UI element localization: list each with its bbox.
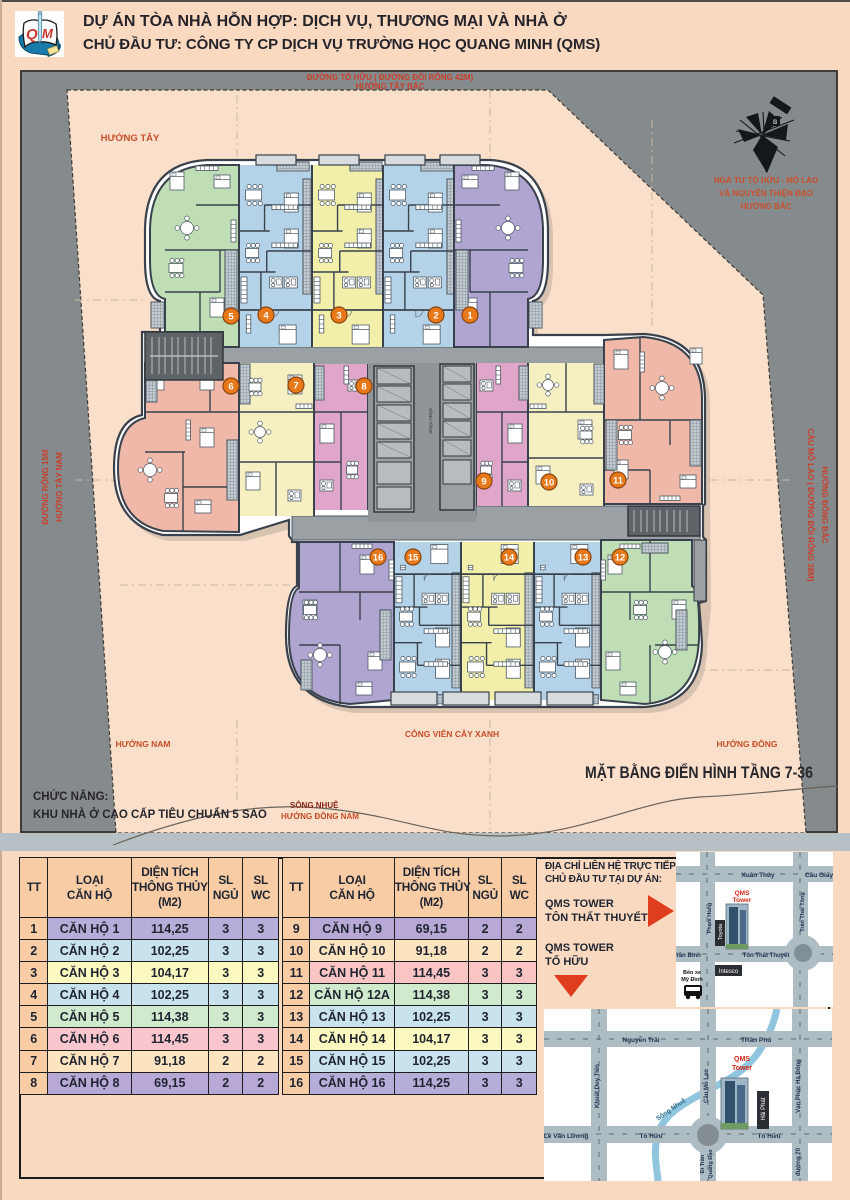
svg-text:Intesco: Intesco [719,969,739,975]
svg-text:14: 14 [504,552,515,563]
svg-text:Trần Bình: Trần Bình [676,953,701,959]
svg-text:CHỨC NĂNG:: CHỨC NĂNG: [33,790,108,803]
svg-text:15: 15 [408,552,419,563]
svg-text:CẦU MỖ LAO ( ĐƯỜNG ĐÔI RỘNG 38: CẦU MỖ LAO ( ĐƯỜNG ĐÔI RỘNG 38M) [806,428,816,581]
svg-text:Nguyễn Trãi: Nguyễn Trãi [622,1035,659,1044]
svg-text:VÀ NGUYỄN THIỆN ĐẠO: VÀ NGUYỄN THIỆN ĐẠO [719,189,813,198]
svg-text:Toyota: Toyota [718,923,724,940]
svg-text:Vạn Phúc Hà Đông: Vạn Phúc Hà Đông [796,1059,802,1113]
svg-text:Tower: Tower [732,1065,752,1072]
svg-text:Khuất Duy Tiến: Khuất Duy Tiến [594,1064,601,1108]
svg-text:1: 1 [467,310,473,321]
svg-text:HƯỚNG ĐÔNG: HƯỚNG ĐÔNG [716,738,777,749]
svg-text:Tố Hữu: Tố Hữu [639,1132,662,1140]
svg-text:10: 10 [544,477,555,488]
svg-text:KHU NHÀ Ở CAO CẤP TIÊU CHUẨN 5: KHU NHÀ Ở CAO CẤP TIÊU CHUẨN 5 SAO [33,808,267,821]
svg-text:Tôn Thất Thuyết: Tôn Thất Thuyết [743,952,790,959]
svg-text:3: 3 [336,310,341,321]
svg-text:NGÃ TƯ TỐ HỮU - MỖ LAO: NGÃ TƯ TỐ HỮU - MỖ LAO [714,175,818,185]
svg-text:Phạm Hùng: Phạm Hùng [707,903,713,934]
svg-text:SẢNH TẦNG: SẢNH TẦNG [428,408,434,435]
svg-text:Hải Phát: Hải Phát [761,1097,767,1120]
svg-text:4: 4 [263,310,269,321]
svg-text:Quang Đạo: Quang Đạo [708,1149,714,1179]
svg-text:CÔNG VIÊN CÂY XANH: CÔNG VIÊN CÂY XANH [405,728,499,739]
svg-text:Tố Hữu: Tố Hữu [757,1132,780,1140]
svg-text:HƯỚNG NAM: HƯỚNG NAM [116,738,171,749]
svg-text:ĐƯỜNG RỘNG 15M: ĐƯỜNG RỘNG 15M [41,449,50,525]
svg-text:HƯỚNG BẮC: HƯỚNG BẮC [741,202,792,211]
svg-text:Xuân Thủy: Xuân Thủy [741,872,775,879]
svg-text:8: 8 [361,381,366,392]
svg-text:ĐƯỜNG TỐ HỮU ( ĐƯỜNG ĐÔI RỘNG: ĐƯỜNG TỐ HỮU ( ĐƯỜNG ĐÔI RỘNG 42M) [307,72,474,82]
svg-text:Bến xe: Bến xe [683,969,701,976]
svg-text:Cầu Giấy: Cầu Giấy [805,870,833,879]
svg-text:MẶT BẰNG ĐIỂN HÌNH TẦNG 7-36: MẶT BẰNG ĐIỂN HÌNH TẦNG 7-36 [585,763,813,782]
svg-text:SÔNG NHUỆ: SÔNG NHUỆ [290,801,339,810]
svg-text:TRần Phú: TRần Phú [741,1035,771,1044]
svg-text:2: 2 [433,310,438,321]
svg-text:HƯỚNG ĐÔNG BẮC: HƯỚNG ĐÔNG BẮC [820,466,829,543]
svg-text:Tower: Tower [733,897,752,904]
svg-text:9: 9 [481,476,486,487]
svg-text:16: 16 [373,552,384,563]
svg-text:QMS: QMS [734,1056,750,1063]
svg-text:HƯỚNG TÂY: HƯỚNG TÂY [101,132,160,144]
svg-text:QMS: QMS [735,890,750,897]
svg-text:Cầu Mỗ Lao: Cầu Mỗ Lao [703,1069,710,1103]
svg-text:13: 13 [578,552,589,563]
svg-text:HƯỚNG ĐÔNG NAM: HƯỚNG ĐÔNG NAM [281,812,359,821]
svg-text:Mỹ Đình: Mỹ Đình [681,977,703,983]
svg-text:11: 11 [613,475,624,486]
svg-text:7: 7 [293,380,298,391]
svg-text:đường 70: đường 70 [796,1147,802,1176]
svg-text:B: B [773,120,778,126]
svg-text:12: 12 [615,552,626,563]
svg-text:HƯỚNG TÂY BẮC: HƯỚNG TÂY BẮC [356,82,425,91]
svg-text:Lê Văn Lương: Lê Văn Lương [544,1133,588,1140]
svg-text:HƯỚNG TÂY NAM: HƯỚNG TÂY NAM [55,452,64,522]
svg-text:Trần Thái Tông: Trần Thái Tông [800,892,806,931]
svg-text:5: 5 [228,311,234,322]
svg-text:6: 6 [228,381,233,392]
svg-text:Đi Trần: Đi Trần [700,1154,706,1173]
